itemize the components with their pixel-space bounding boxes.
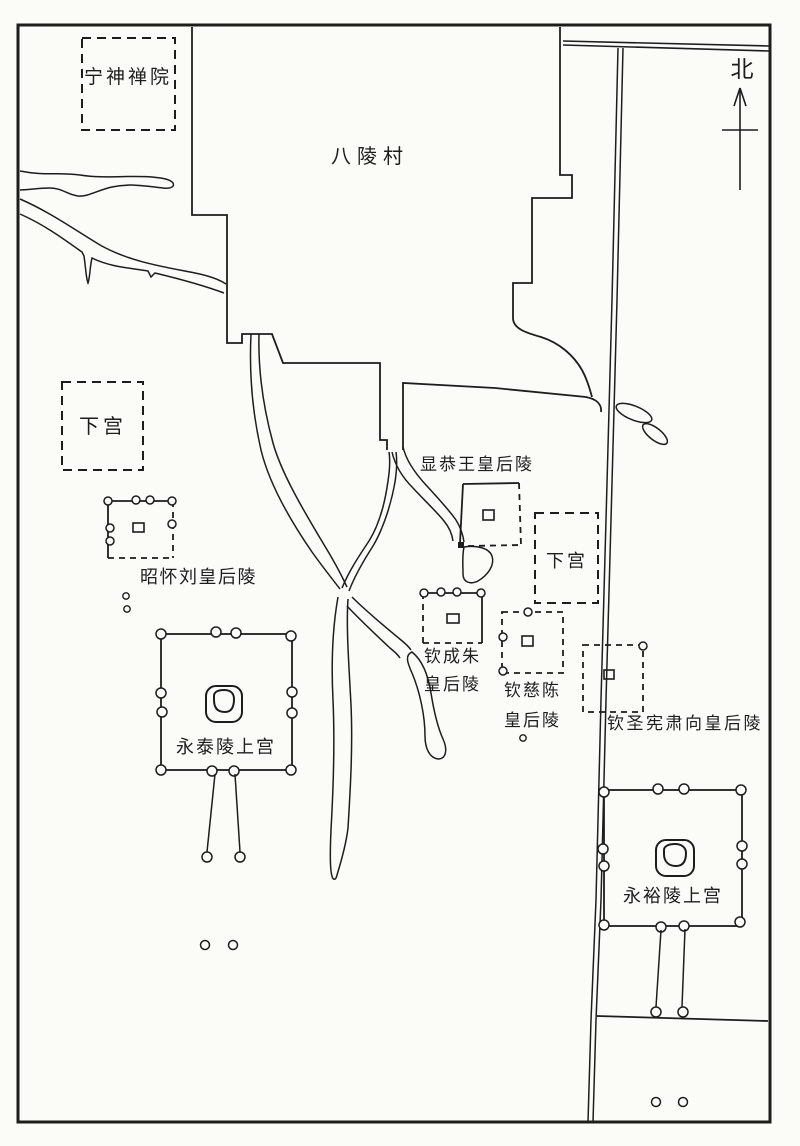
- main-road-line-west: [588, 48, 618, 1122]
- yongtai-burial-mound-inner: [214, 690, 234, 712]
- gully-south-branch: [330, 597, 351, 879]
- north-label: 北: [731, 57, 754, 82]
- qinchengzhu-tomb-label-line1: 钦成朱: [424, 647, 481, 666]
- gully-southeast-branch-north-bank: [352, 597, 411, 650]
- stream-upper-left: [20, 171, 173, 196]
- qincichen-tomb-enclosure: [499, 608, 563, 675]
- gully-central-east-bank: [259, 334, 347, 587]
- zhaohuai-tomb-label: 昭怀刘皇后陵: [140, 567, 257, 587]
- yongtai-palace-label: 永泰陵上宫: [176, 737, 276, 757]
- yongyu-burial-mound-outer: [656, 840, 694, 876]
- song-tombs-site-map: 宁神禅院 八陵村 北 下宫 昭怀刘皇后陵 显恭王皇后陵 下宫: [0, 0, 800, 1146]
- stone-dot-zhaohuai-2: [124, 606, 130, 612]
- village-boundary-west: [192, 27, 387, 450]
- stream-lower-left-south-bank: [20, 214, 224, 293]
- yongtai-spirit-way: [201, 774, 246, 950]
- xiangong-tomb-label: 显恭王皇后陵: [420, 455, 534, 474]
- xiangong-tomb-enclosure: [460, 483, 521, 546]
- gully-northeast-branch-west: [342, 452, 390, 588]
- zhaohuai-tomb-enclosure: [104, 496, 176, 558]
- village-boundary-east: [513, 27, 592, 397]
- map-border-frame: [18, 25, 770, 1122]
- marker-square-xiangong-corner: [458, 542, 464, 548]
- gully-central-west-bank: [250, 334, 340, 589]
- stone-dot-qincichen: [520, 735, 526, 741]
- qincichen-tomb-label-line2: 皇后陵: [504, 711, 561, 730]
- qinchengzhu-tomb-label-line2: 皇后陵: [424, 675, 481, 694]
- yongyu-palace-label: 永裕陵上宫: [623, 886, 723, 906]
- north-arrow-icon: [722, 88, 758, 190]
- qincichen-tomb-label-line1: 钦慈陈: [504, 681, 561, 700]
- xiagong-right-label: 下宫: [546, 551, 588, 571]
- gully-hook-near-xiangong: [463, 546, 493, 582]
- gully-teardrop-blob: [407, 652, 445, 759]
- baling-village-label: 八陵村: [331, 145, 409, 168]
- stone-dot-zhaohuai-1: [123, 593, 129, 599]
- pond-east-of-road-1: [614, 399, 654, 426]
- pond-east-of-road-2: [639, 420, 670, 448]
- qinchengzhu-tomb-enclosure: [420, 588, 485, 643]
- stream-lower-left-north-bank: [20, 199, 226, 284]
- yongyu-palace-enclosure: [598, 784, 747, 932]
- village-boundary-south: [403, 383, 601, 450]
- qinshengxiansu-tomb-label: 钦圣宪肃向皇后陵: [607, 714, 763, 733]
- xiagong-left-label: 下宫: [79, 415, 127, 438]
- ningshen-temple-label: 宁神禅院: [84, 66, 172, 88]
- qinshengxiansu-tomb-enclosure: [583, 642, 647, 712]
- yongtai-burial-mound-outer: [206, 686, 242, 722]
- yongyu-burial-mound-inner: [664, 844, 686, 866]
- scanned-site-map-page: 宁神禅院 八陵村 北 下宫 昭怀刘皇后陵 显恭王皇后陵 下宫: [0, 0, 800, 1146]
